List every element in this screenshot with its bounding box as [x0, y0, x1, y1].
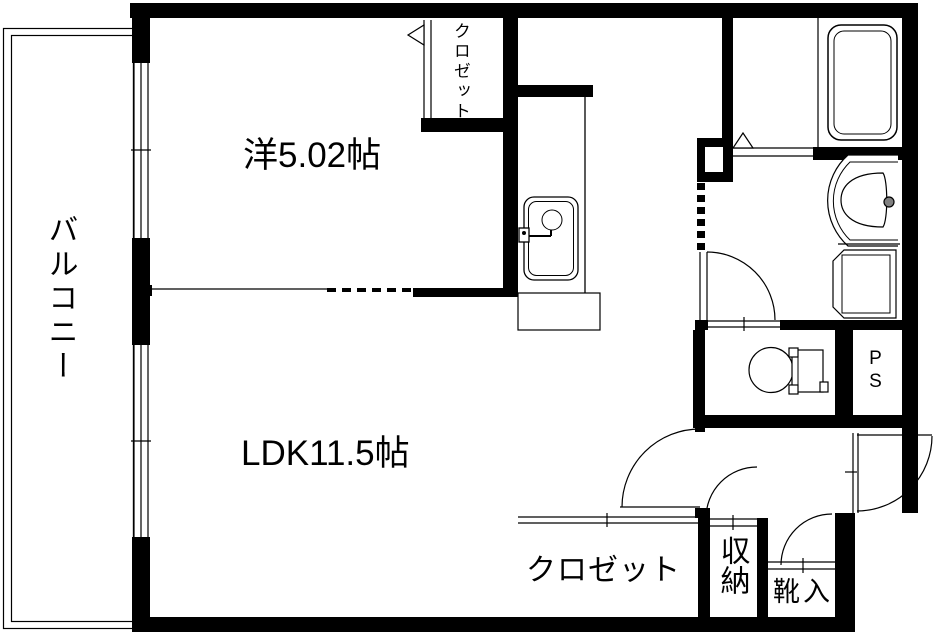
door-arc — [781, 514, 832, 565]
closet-bottom-label: クロゼット — [526, 555, 681, 587]
entrance-door-arc — [857, 436, 932, 511]
window-western-room — [131, 63, 151, 238]
wall-left-c — [132, 537, 150, 632]
washroom-door — [700, 252, 775, 322]
toilet-door — [708, 317, 780, 331]
door-direction-arrow-icon — [733, 133, 753, 148]
washing-machine-pan-icon — [833, 244, 900, 318]
pipe-space-label: PS — [865, 348, 885, 394]
ldk-label: LDK11.5帖 — [241, 436, 410, 473]
window-ldk — [131, 345, 151, 537]
floor-plan-drawing — [0, 0, 940, 642]
wall-kitchen-top — [518, 85, 593, 97]
wall-stub-western-left — [140, 285, 152, 296]
bathroom-folding-door — [733, 133, 813, 156]
kitchen-counter — [518, 293, 600, 330]
storage-door — [706, 467, 757, 530]
wall-shoe-right — [835, 513, 855, 632]
entrance-door — [845, 433, 932, 513]
faucet-knob-icon — [884, 197, 894, 207]
balcony-label: バルコニー — [44, 214, 76, 384]
wall-bathroom-left — [722, 18, 733, 147]
wall-toilet-left — [693, 330, 705, 417]
storage-label: 収納 — [716, 535, 748, 595]
wall-right — [902, 3, 918, 513]
wall-toilet-ps-divider — [835, 320, 853, 417]
western-room-label: 洋5.02帖 — [243, 138, 381, 175]
floor-plan: バルコニー 洋5.02帖 クロゼット LDK11.5帖 クロゼット 収納 靴入 … — [0, 0, 940, 642]
wall-closet-storage-divider — [698, 517, 710, 628]
pillar-duct-hole — [705, 147, 723, 172]
closet-top-door — [408, 20, 431, 118]
wall-kitchen-vertical — [503, 18, 518, 295]
shoe-cabinet-door — [768, 514, 835, 573]
bathtub-icon — [828, 25, 897, 140]
toilet-icon — [749, 348, 828, 395]
shoe-cabinet-label: 靴入 — [773, 578, 833, 606]
washbasin-icon — [828, 155, 898, 246]
door-direction-arrow-icon — [408, 25, 424, 45]
closet-top-label: クロゼット — [451, 22, 469, 122]
door-arc — [622, 429, 700, 507]
kitchen-sink-icon — [519, 97, 585, 293]
wall-toilet-top-left — [695, 320, 708, 330]
door-arc — [707, 252, 775, 320]
wall-top — [130, 3, 918, 18]
door-arc — [706, 467, 757, 518]
wall-left-a — [132, 3, 150, 63]
wall-western-bottom — [413, 288, 518, 297]
ldk-hall-door — [620, 429, 700, 507]
wall-storage-shoe-divider — [757, 518, 768, 628]
closet-bottom-sliding-door — [518, 513, 698, 527]
wall-toilet-bottom — [693, 415, 918, 428]
room-boundary-line — [151, 289, 414, 290]
wall-bottom — [132, 617, 855, 632]
